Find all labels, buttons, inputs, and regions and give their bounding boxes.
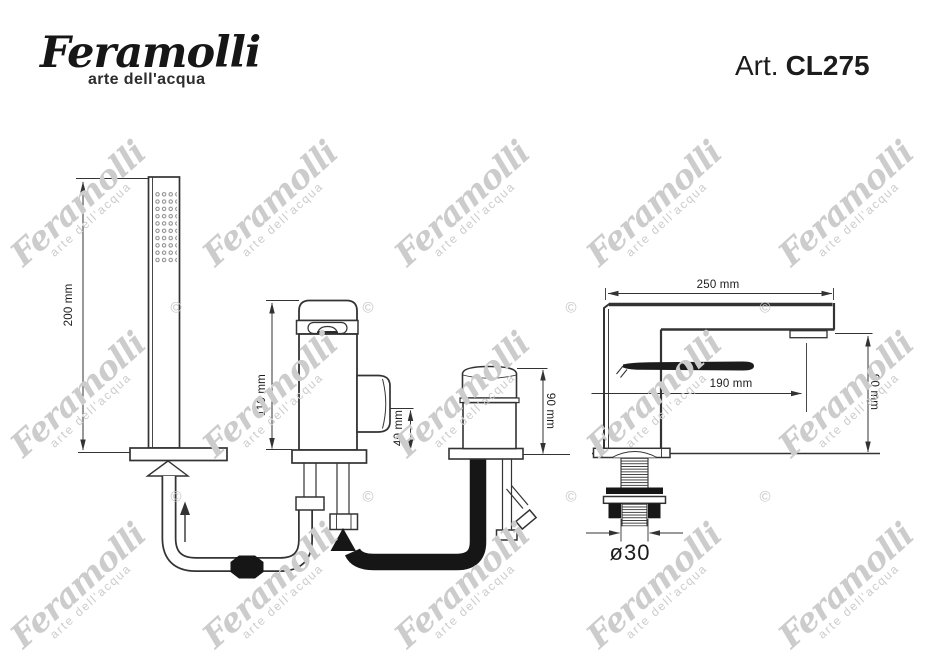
hand-shower-drawing — [76, 177, 306, 579]
flow-direction-arrow — [180, 502, 190, 516]
diverter-body — [463, 403, 516, 449]
mixer-drawing — [266, 301, 414, 530]
page: Feramolli arte dell'acqua Art.CL275 — [0, 0, 940, 663]
hose-weight — [231, 556, 264, 579]
angled-fitting-nut — [516, 510, 536, 529]
mixer-base-plate — [292, 450, 367, 463]
hose-connector-block — [330, 514, 358, 530]
dim-label-handshower-height: 200 mm — [63, 265, 75, 345]
dim-label-spout-outlet-reach: 190 mm — [691, 378, 771, 390]
spout-drawing — [586, 288, 880, 542]
mixer-side-knob — [357, 376, 390, 433]
spout-outlet — [790, 331, 827, 338]
wand-base-plate — [130, 448, 227, 461]
brand-logo: Feramolli arte dell'acqua — [40, 30, 260, 89]
diverter-hose — [353, 458, 479, 562]
mixer-dome — [299, 301, 357, 321]
dim-label-shank-diameter: ø30 — [590, 540, 670, 566]
mounting-shank-thread — [621, 458, 648, 488]
hose-arrow — [331, 528, 357, 551]
dim-label-diverter-height: 90 mm — [544, 371, 556, 451]
shank-nut — [606, 488, 663, 495]
supply-pipe-nut — [497, 530, 518, 540]
shower-hose-outline — [169, 476, 306, 565]
brand-name: Feramolli — [40, 30, 260, 77]
waterfall-stream — [623, 362, 754, 371]
hose-coupling — [296, 497, 324, 510]
diverter-base-plate — [449, 449, 523, 460]
shank-washer — [604, 497, 666, 504]
article-code: CL275 — [786, 50, 870, 81]
mounting-triangle — [148, 461, 189, 476]
dim-label-mixer-height: 110 mm — [256, 355, 268, 435]
spray-nozzles — [155, 191, 178, 265]
mixer-body — [299, 334, 357, 450]
dim-label-spout-height: 90 mm — [868, 352, 880, 432]
technical-drawing-canvas — [0, 0, 940, 663]
shower-hose — [169, 476, 306, 565]
dim-label-spout-reach: 250 mm — [678, 279, 758, 291]
article-prefix: Art. — [735, 50, 779, 81]
diverter-cap — [463, 367, 517, 399]
dim-label-mixer-knob: 40 mm — [393, 388, 405, 468]
article-number: Art.CL275 — [735, 50, 870, 82]
